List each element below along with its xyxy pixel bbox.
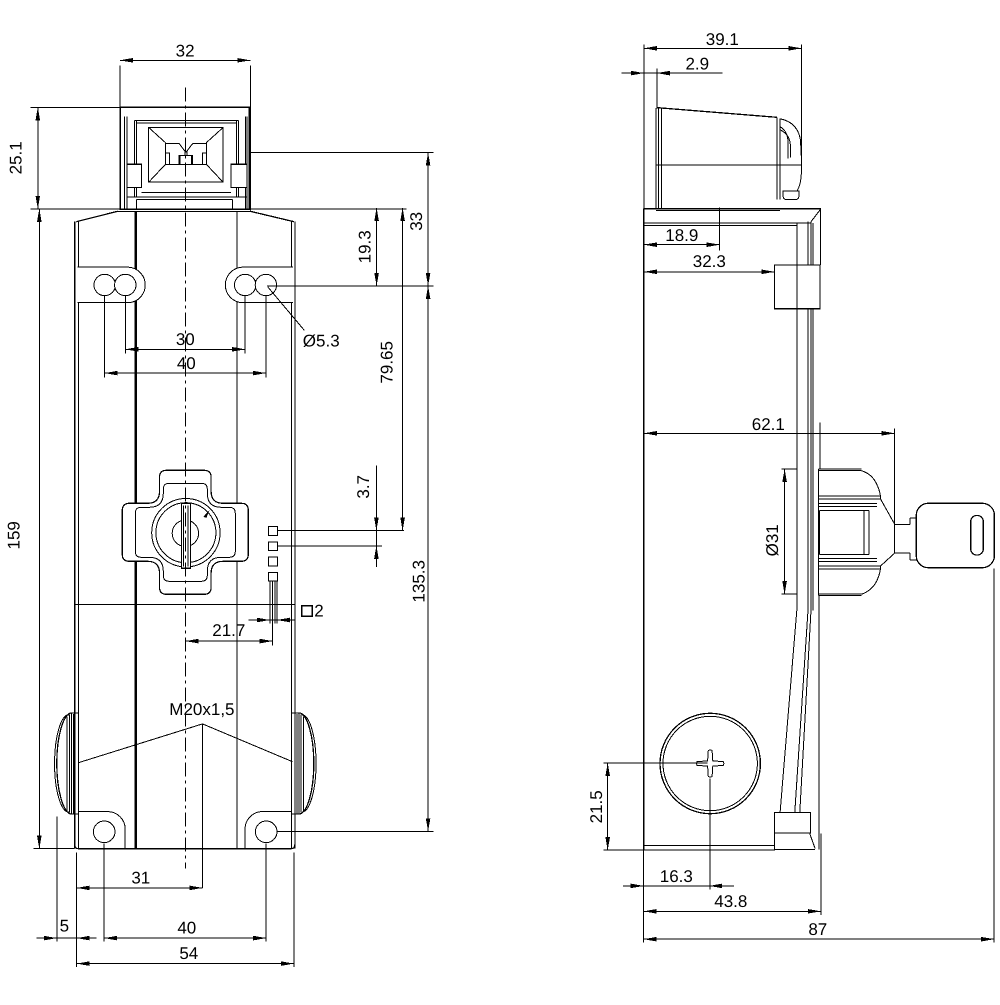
svg-text:39.1: 39.1 — [706, 30, 739, 49]
svg-text:2.9: 2.9 — [685, 54, 709, 73]
svg-text:16.3: 16.3 — [660, 867, 693, 886]
svg-text:135.3: 135.3 — [409, 560, 428, 603]
svg-text:30: 30 — [176, 330, 195, 349]
svg-text:43.8: 43.8 — [714, 892, 747, 911]
svg-text:2: 2 — [314, 601, 323, 620]
svg-text:Ø31: Ø31 — [763, 524, 782, 556]
svg-text:21.5: 21.5 — [587, 790, 606, 823]
svg-text:40: 40 — [177, 918, 196, 937]
svg-text:21.7: 21.7 — [212, 621, 245, 640]
svg-text:40: 40 — [177, 354, 196, 373]
svg-text:79.65: 79.65 — [377, 341, 396, 384]
svg-text:62.1: 62.1 — [752, 415, 785, 434]
svg-text:Ø5.3: Ø5.3 — [303, 331, 340, 350]
svg-text:33: 33 — [407, 212, 426, 231]
svg-text:31: 31 — [131, 868, 150, 887]
svg-text:87: 87 — [808, 920, 827, 939]
svg-text:32.3: 32.3 — [693, 252, 726, 271]
svg-text:25.1: 25.1 — [6, 141, 25, 174]
svg-text:3.7: 3.7 — [354, 475, 373, 499]
svg-text:M20x1,5: M20x1,5 — [169, 700, 234, 719]
svg-text:19.3: 19.3 — [355, 230, 374, 263]
svg-text:18.9: 18.9 — [665, 226, 698, 245]
svg-text:54: 54 — [179, 944, 198, 963]
svg-text:159: 159 — [4, 521, 23, 549]
svg-text:32: 32 — [176, 41, 195, 60]
svg-text:5: 5 — [60, 916, 69, 935]
